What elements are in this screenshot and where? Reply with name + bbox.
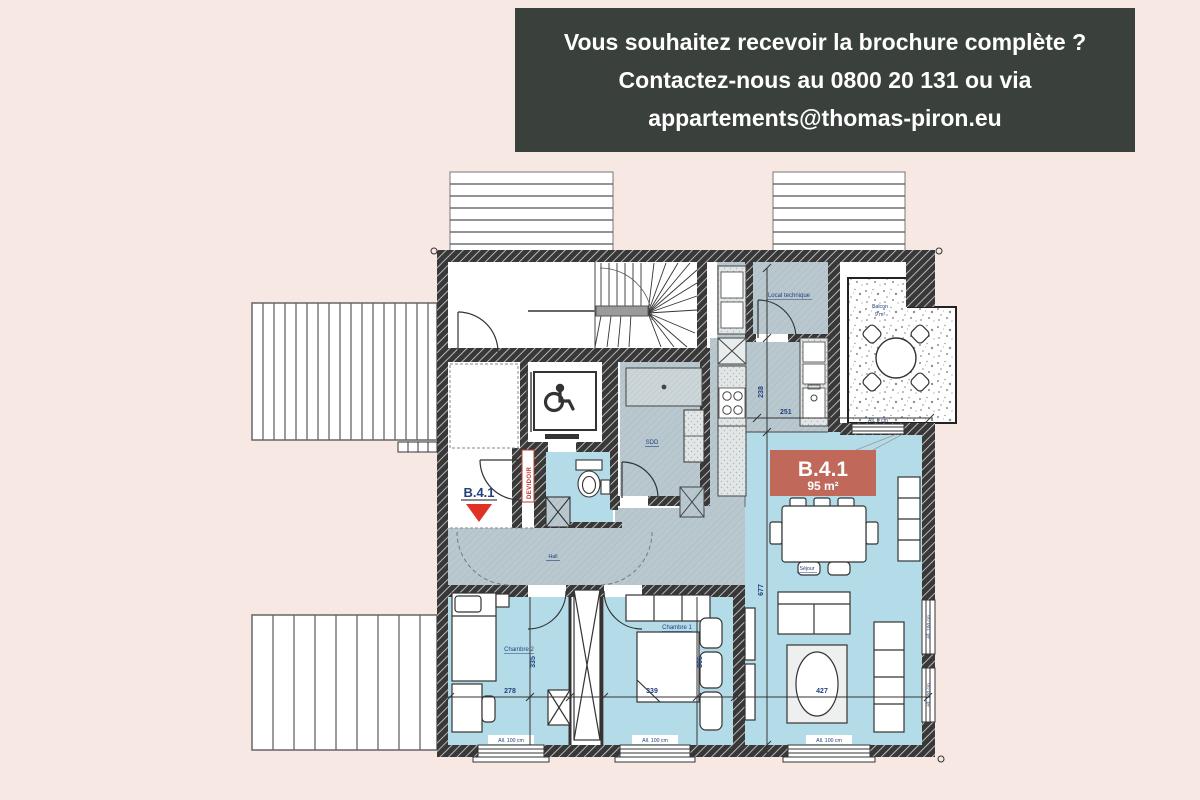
floor-plan: Balcon 9 m² xyxy=(240,165,965,765)
window-sill-label: All. 100 cm xyxy=(498,738,524,744)
dim-677: 677 xyxy=(758,584,765,596)
balcony-door-label: All. 0 cm xyxy=(868,418,888,424)
roof-top-left xyxy=(450,172,613,252)
elevator xyxy=(527,372,596,439)
unit-area: 95 m² xyxy=(807,479,838,493)
roof-left-upper xyxy=(252,303,437,440)
hall-label: Hall xyxy=(549,554,558,560)
sdd-label: SDD xyxy=(646,440,659,446)
window-sill-label: All. 100 cm xyxy=(642,738,668,744)
sejour-label: Séjour xyxy=(800,566,815,572)
unit-id: B.4.1 xyxy=(798,458,849,481)
dim-251: 251 xyxy=(780,409,792,416)
balcony-area-label: 9 m² xyxy=(875,312,886,318)
storage-nook xyxy=(450,364,518,448)
window-sill-label: All. 100 cm xyxy=(926,615,932,639)
devidoir-label: DEVIDOIR xyxy=(527,467,533,499)
brochure-banner: Vous souhaitez recevoir la brochure comp… xyxy=(515,8,1135,152)
dim-278: 278 xyxy=(504,688,516,695)
contact-email[interactable]: appartements@thomas-piron.eu xyxy=(648,99,1001,137)
balcony-table xyxy=(876,338,916,378)
chambre1-label: Chambre 1 xyxy=(662,625,692,631)
dim-427: 427 xyxy=(816,688,828,695)
banner-line-1: Vous souhaitez recevoir la brochure comp… xyxy=(564,23,1086,61)
balcony: Balcon 9 m² xyxy=(848,278,956,423)
roof-top-right xyxy=(773,172,905,252)
window-sill-label: All. 100 cm xyxy=(816,738,842,744)
balcony-label: Balcon xyxy=(872,304,888,310)
local-technique-label: Local technique xyxy=(768,293,811,299)
entrance-unit-label: B.4.1 xyxy=(463,485,494,500)
window-sill-label: All. 100 cm xyxy=(926,683,932,707)
dim-365: 365 xyxy=(697,656,704,668)
roof-left-lower xyxy=(252,615,437,750)
banner-line-2: Contactez-nous au 0800 20 131 ou via xyxy=(619,61,1032,99)
stair-handrail xyxy=(596,306,648,316)
dim-335: 335 xyxy=(530,656,537,668)
floor-plan-svg: Balcon 9 m² xyxy=(240,165,965,765)
dining-table xyxy=(782,506,866,562)
fire-hose-reel: DEVIDOIR xyxy=(522,450,534,502)
dim-238: 238 xyxy=(758,386,765,398)
desk xyxy=(452,684,482,732)
dim-339: 339 xyxy=(646,688,658,695)
